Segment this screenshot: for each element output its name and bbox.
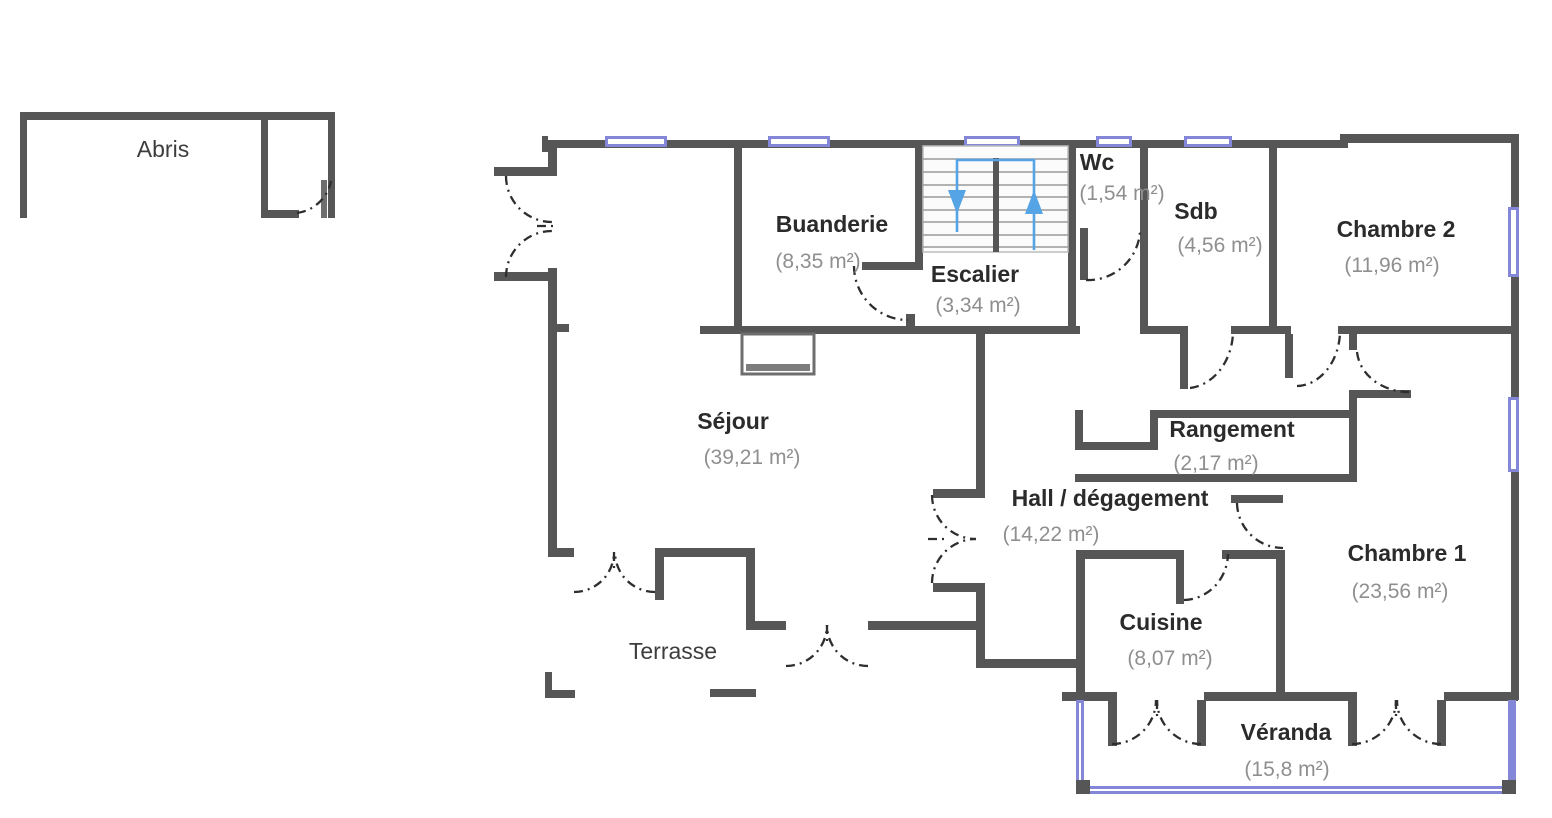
room-name-buanderie: Buanderie bbox=[776, 211, 888, 237]
door-arc bbox=[615, 552, 655, 592]
door-arc bbox=[932, 539, 976, 583]
room-area-veranda: (15,8 m²) bbox=[1244, 758, 1329, 781]
window bbox=[1508, 207, 1519, 277]
door-arc bbox=[1157, 700, 1201, 744]
room-name-rangement: Rangement bbox=[1169, 416, 1295, 442]
room-area-escalier: (3,34 m²) bbox=[935, 294, 1020, 317]
door-arc bbox=[1397, 700, 1441, 744]
door-arc bbox=[1112, 700, 1156, 744]
room-name-chambre1: Chambre 1 bbox=[1348, 540, 1467, 566]
floor-plan: Abris Terrasse Buanderie (8,35 m²) Escal… bbox=[0, 0, 1552, 818]
room-area-sejour: (39,21 m²) bbox=[704, 446, 801, 469]
room-area-wc: (1,54 m²) bbox=[1079, 182, 1164, 205]
terrace-posts bbox=[545, 672, 756, 698]
room-name-veranda: Véranda bbox=[1241, 719, 1332, 745]
door-arc bbox=[786, 625, 827, 666]
outbuilding-label: Abris bbox=[137, 136, 189, 162]
door-arc bbox=[827, 625, 868, 666]
door-arc bbox=[1357, 352, 1409, 392]
room-name-escalier: Escalier bbox=[931, 261, 1019, 287]
door-arc bbox=[1086, 232, 1140, 280]
room-area-hall: (14,22 m²) bbox=[1003, 523, 1100, 546]
room-name-wc: Wc bbox=[1080, 149, 1115, 175]
door-arc bbox=[1190, 333, 1233, 388]
room-area-cuisine: (8,07 m²) bbox=[1127, 647, 1212, 670]
door-arc bbox=[574, 552, 614, 592]
outbuilding-walls bbox=[20, 112, 335, 218]
door-arc bbox=[506, 176, 552, 222]
window bbox=[1508, 397, 1519, 472]
floor-plan-page: Abris Terrasse Buanderie (8,35 m²) Escal… bbox=[0, 0, 1552, 818]
room-area-sdb: (4,56 m²) bbox=[1177, 234, 1262, 257]
door-arc bbox=[932, 495, 976, 539]
door-arc bbox=[854, 266, 908, 320]
door-arc bbox=[1352, 700, 1396, 744]
window bbox=[1096, 136, 1132, 147]
room-area-chambre1: (23,56 m²) bbox=[1352, 580, 1449, 603]
room-name-hall: Hall / dégagement bbox=[1012, 485, 1209, 511]
room-area-chambre2: (11,96 m²) bbox=[1344, 254, 1439, 277]
room-name-chambre2: Chambre 2 bbox=[1337, 216, 1456, 242]
room-name-sejour: Séjour bbox=[697, 408, 769, 434]
window bbox=[1184, 136, 1232, 147]
chimney bbox=[742, 334, 814, 374]
window bbox=[768, 136, 830, 147]
labels: Abris Terrasse Buanderie (8,35 m²) Escal… bbox=[137, 136, 1467, 781]
door-arc bbox=[1237, 503, 1283, 548]
room-name-cuisine: Cuisine bbox=[1119, 609, 1202, 635]
room-area-buanderie: (8,35 m²) bbox=[775, 250, 860, 273]
window bbox=[605, 136, 667, 147]
door-arc bbox=[1184, 554, 1228, 600]
terrace-label: Terrasse bbox=[629, 638, 717, 664]
door-arc bbox=[1297, 333, 1340, 386]
door-arc bbox=[506, 231, 552, 277]
room-name-sdb: Sdb bbox=[1174, 198, 1217, 224]
stair-center-rail bbox=[993, 158, 999, 252]
staircase bbox=[923, 146, 1068, 252]
room-area-rangement: (2,17 m²) bbox=[1173, 452, 1258, 475]
